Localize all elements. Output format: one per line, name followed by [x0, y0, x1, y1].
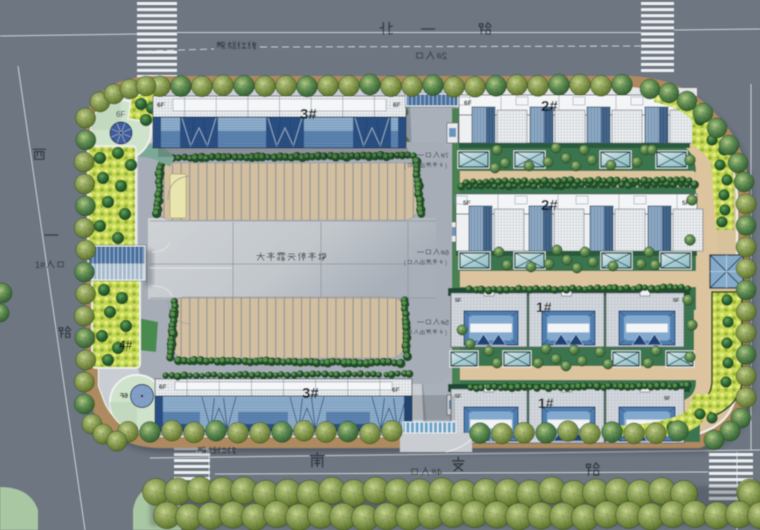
svg-text:2#: 2# — [541, 197, 558, 214]
svg-text:5F: 5F — [463, 200, 471, 207]
svg-text:6F: 6F — [464, 100, 472, 107]
svg-text:6F: 6F — [392, 387, 400, 394]
svg-text:2#: 2# — [436, 51, 447, 62]
svg-text:(: ( — [445, 261, 447, 267]
svg-text:4#: 4# — [119, 338, 133, 352]
svg-text:): ) — [404, 164, 406, 170]
svg-text:3#: 3# — [300, 106, 317, 123]
svg-text:5F: 5F — [455, 394, 462, 400]
svg-text:(: ( — [445, 164, 447, 170]
svg-text:2#: 2# — [541, 98, 558, 115]
svg-text:1#: 1# — [536, 299, 552, 315]
svg-text:6F: 6F — [157, 102, 165, 109]
svg-text:3#: 3# — [302, 385, 319, 402]
svg-text:7#: 7# — [440, 151, 449, 160]
svg-text:1#: 1# — [35, 260, 45, 270]
svg-text:): ) — [404, 331, 406, 337]
svg-text:6F: 6F — [119, 393, 128, 400]
svg-text:6F: 6F — [116, 110, 125, 119]
svg-text:4#: 4# — [431, 467, 442, 478]
svg-text:6F: 6F — [159, 384, 167, 391]
svg-text:(: ( — [445, 331, 447, 337]
svg-text:1#: 1# — [538, 395, 554, 411]
svg-text:6#: 6# — [440, 248, 449, 257]
svg-text:5F: 5F — [664, 396, 671, 402]
svg-text:5F: 5F — [673, 298, 680, 304]
svg-text:6F: 6F — [393, 102, 401, 109]
svg-text:5F: 5F — [455, 298, 462, 304]
svg-text:): ) — [404, 261, 406, 267]
svg-text:5#: 5# — [440, 318, 449, 327]
